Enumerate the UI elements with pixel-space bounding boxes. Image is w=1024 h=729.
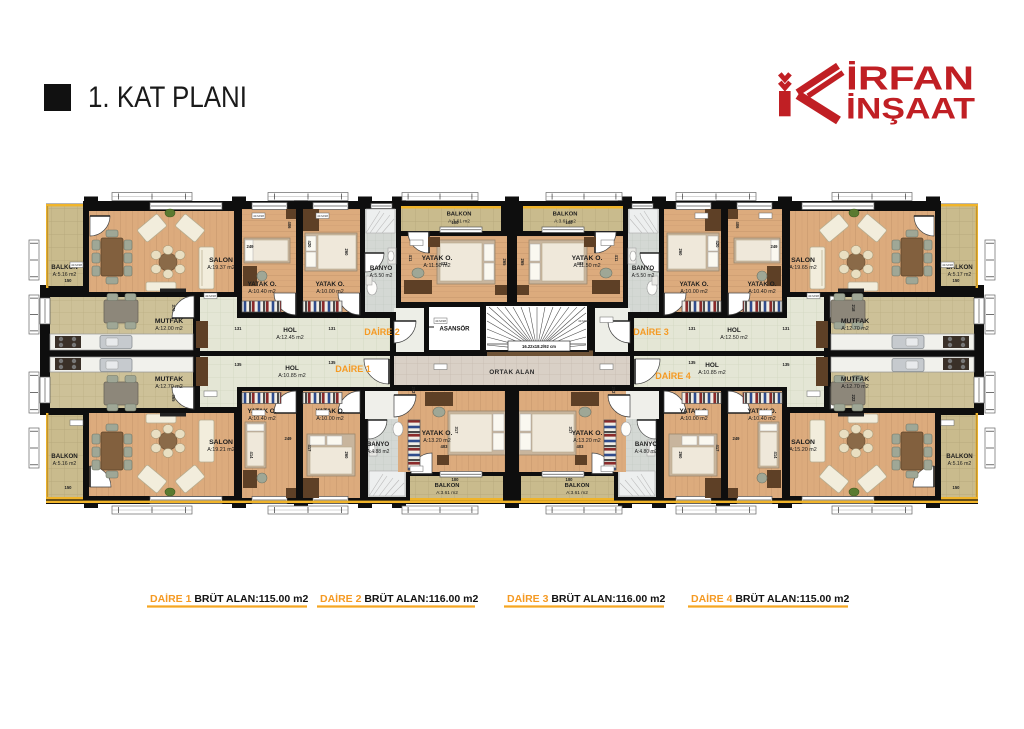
svg-text:249: 249 [285,436,293,441]
svg-text:MUTFAK: MUTFAK [841,376,869,383]
svg-text:403: 403 [441,444,449,449]
svg-text:411: 411 [614,255,619,262]
svg-text:150: 150 [65,485,73,490]
svg-text:A:5.16 m2: A:5.16 m2 [948,461,972,467]
svg-text:150: 150 [953,278,961,283]
svg-text:420: 420 [307,241,312,249]
svg-text:A:10.40 m2: A:10.40 m2 [248,416,276,422]
svg-text:A:12.50 m2: A:12.50 m2 [720,335,748,341]
svg-text:365: 365 [171,395,176,403]
svg-text:A:19.65 m2: A:19.65 m2 [789,265,817,271]
svg-text:ORTAK ALAN: ORTAK ALAN [489,369,535,376]
svg-text:A:5.50 m2: A:5.50 m2 [370,273,393,279]
svg-text:DAİRE 4: DAİRE 4 [655,371,691,381]
svg-text:HOL: HOL [283,327,297,334]
svg-text:BANYO: BANYO [370,265,393,272]
svg-text:292: 292 [411,387,416,395]
svg-text:403: 403 [577,444,585,449]
svg-text:131: 131 [235,326,243,331]
svg-text:YATAK O.: YATAK O. [572,430,603,437]
svg-text:292: 292 [611,387,616,395]
svg-text:218: 218 [851,305,856,313]
svg-text:420: 420 [715,241,720,249]
svg-text:43.M/28: 43.M/28 [435,319,446,323]
svg-text:A:12.70 m2: A:12.70 m2 [841,326,869,332]
svg-text:260: 260 [344,249,349,257]
svg-text:260: 260 [678,249,683,257]
svg-text:A:10.00 m2: A:10.00 m2 [680,289,708,295]
svg-text:150: 150 [953,485,961,490]
svg-text:A:3.61 m2: A:3.61 m2 [566,490,588,496]
svg-text:100: 100 [452,220,460,225]
svg-text:SALON: SALON [209,257,233,264]
svg-text:A:10.00 m2: A:10.00 m2 [316,289,344,295]
svg-text:HOL: HOL [705,362,719,369]
svg-text:DAİRE 3: DAİRE 3 [633,327,669,337]
svg-text:DAİRE 2: DAİRE 2 [364,327,400,337]
svg-text:249: 249 [771,244,779,249]
svg-text:SALON: SALON [791,439,815,446]
svg-text:MUTFAK: MUTFAK [155,318,183,325]
svg-text:A:12.70 m2: A:12.70 m2 [155,384,183,390]
svg-text:DAİRE 1 BRÜT ALAN:115.00 m2: DAİRE 1 BRÜT ALAN:115.00 m2 [150,592,308,605]
svg-text:A:10.00 m2: A:10.00 m2 [680,416,708,422]
svg-text:BANYO: BANYO [367,441,390,448]
svg-text:135: 135 [235,362,243,367]
svg-text:BANYO: BANYO [632,265,655,272]
svg-text:A:3.61 m2: A:3.61 m2 [436,490,458,496]
svg-text:İNŞAAT: İNŞAAT [846,93,975,126]
svg-text:BALKON: BALKON [553,212,578,218]
svg-text:43.M/28: 43.M/28 [317,214,328,218]
svg-text:A:4.80 m2: A:4.80 m2 [635,449,658,455]
svg-text:İRFAN: İRFAN [846,60,974,97]
svg-text:DAİRE 4 BRÜT ALAN:115.00 m2: DAİRE 4 BRÜT ALAN:115.00 m2 [691,592,849,605]
svg-text:A:10.85 m2: A:10.85 m2 [698,370,726,376]
svg-text:YATAK O.: YATAK O. [316,281,345,288]
svg-text:249: 249 [733,436,741,441]
svg-text:414: 414 [249,452,254,460]
svg-text:43.M/28: 43.M/28 [578,319,589,323]
svg-text:YATAK O.: YATAK O. [248,281,277,288]
svg-text:A:19.21 m2: A:19.21 m2 [207,447,235,453]
svg-text:265: 265 [520,259,525,267]
svg-text:100: 100 [566,477,574,482]
svg-text:YATAK O.: YATAK O. [422,430,453,437]
svg-text:150: 150 [65,278,73,283]
svg-text:BALKON: BALKON [946,453,973,460]
svg-text:43.M/28: 43.M/28 [253,214,264,218]
svg-text:BALKON: BALKON [51,453,78,460]
svg-text:BALKON: BALKON [565,483,590,489]
svg-text:417: 417 [307,445,312,453]
svg-text:317: 317 [568,427,573,435]
svg-text:260: 260 [344,452,349,460]
svg-text:100: 100 [566,220,574,225]
svg-text:1. KAT PLANI: 1. KAT PLANI [88,81,247,114]
svg-text:43.M/28: 43.M/28 [808,294,819,298]
svg-text:YATAK O.: YATAK O. [422,255,453,262]
svg-text:249: 249 [247,244,255,249]
svg-text:A:4.88 m2: A:4.88 m2 [367,449,390,455]
svg-text:131: 131 [783,326,791,331]
svg-text:SALON: SALON [209,439,233,446]
svg-text:411: 411 [408,255,413,262]
svg-text:DAİRE 2 BRÜT ALAN:116.00 m2: DAİRE 2 BRÜT ALAN:116.00 m2 [320,592,478,605]
svg-text:433: 433 [441,261,449,266]
svg-text:131: 131 [689,326,697,331]
svg-text:ASANSÖR: ASANSÖR [439,326,470,333]
svg-text:222: 222 [851,395,856,403]
svg-text:BALKON: BALKON [435,483,460,489]
svg-text:406: 406 [735,222,740,230]
svg-text:370: 370 [171,305,176,313]
svg-text:A:5.17 m2: A:5.17 m2 [948,272,972,278]
svg-text:131: 131 [329,326,337,331]
svg-text:BALKON: BALKON [447,212,472,218]
svg-text:260: 260 [678,452,683,460]
svg-text:A:10.40 m2: A:10.40 m2 [748,289,776,295]
svg-text:YATAK O.: YATAK O. [680,281,709,288]
svg-text:MUTFAK: MUTFAK [155,376,183,383]
svg-text:A:5.50 m2: A:5.50 m2 [632,273,655,279]
svg-text:265: 265 [502,259,507,267]
svg-text:A:12.70 m2: A:12.70 m2 [841,384,869,390]
svg-text:SALON: SALON [791,257,815,264]
svg-text:DAİRE 3 BRÜT ALAN:116.00 m2: DAİRE 3 BRÜT ALAN:116.00 m2 [507,592,665,605]
svg-text:HOL: HOL [727,327,741,334]
svg-text:43.M/28: 43.M/28 [71,263,82,267]
svg-text:433: 433 [577,261,585,266]
svg-text:A:10.40 m2: A:10.40 m2 [248,289,276,295]
svg-text:135: 135 [329,360,337,365]
svg-text:DAİRE 1: DAİRE 1 [335,364,371,374]
svg-text:A:10.40 m2: A:10.40 m2 [748,416,776,422]
svg-text:HOL: HOL [285,365,299,372]
svg-text:16.22x18.2/92 cm: 16.22x18.2/92 cm [522,344,556,349]
svg-text:A:10.85 m2: A:10.85 m2 [278,373,306,379]
svg-text:135: 135 [783,362,791,367]
svg-text:A:12.45 m2: A:12.45 m2 [276,335,304,341]
svg-text:MUTFAK: MUTFAK [841,318,869,325]
svg-text:BANYO: BANYO [635,441,658,448]
svg-text:A:5.16 m2: A:5.16 m2 [53,461,77,467]
svg-text:YATAK O.: YATAK O. [748,281,777,288]
svg-text:A:10.00 m2: A:10.00 m2 [316,416,344,422]
svg-text:417: 417 [715,445,720,453]
svg-text:43.M/28: 43.M/28 [942,263,953,267]
svg-text:43.M/28: 43.M/28 [205,294,216,298]
svg-text:100: 100 [452,477,460,482]
svg-text:135: 135 [689,360,697,365]
svg-text:A:12.00 m2: A:12.00 m2 [155,326,183,332]
svg-text:A:19.37 m2: A:19.37 m2 [207,265,235,271]
svg-text:317: 317 [454,427,459,435]
svg-text:A:15.20 m2: A:15.20 m2 [789,447,817,453]
svg-text:406: 406 [287,222,292,230]
svg-text:414: 414 [773,452,778,460]
